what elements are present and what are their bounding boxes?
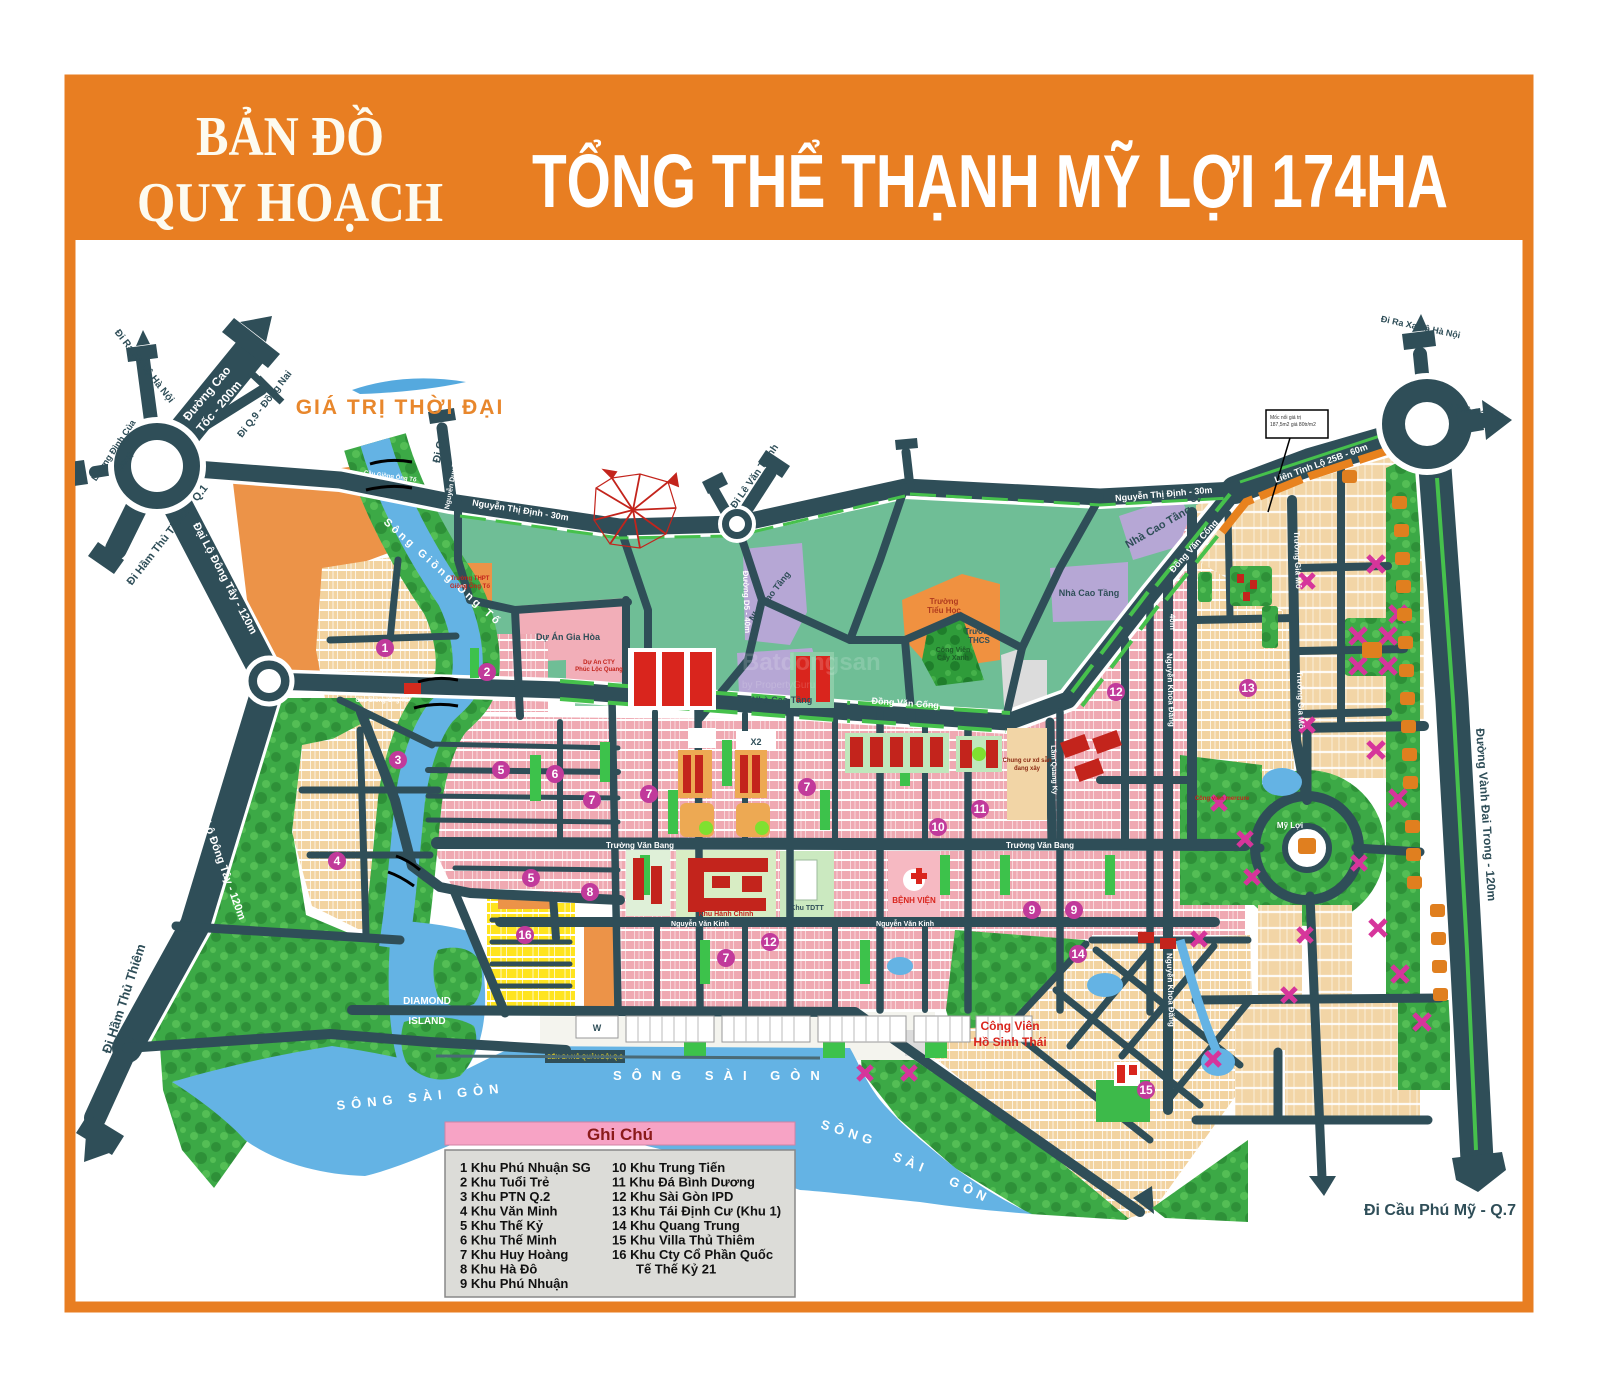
svg-text:Chung cư xd sẵn: Chung cư xd sẵn [1002, 757, 1051, 764]
svg-text:Trường: Trường [965, 627, 994, 636]
svg-text:2: 2 [484, 665, 491, 679]
svg-text:SÔNG SÀI GÒN: SÔNG SÀI GÒN [613, 1068, 830, 1083]
svg-text:Dự An CTY: Dự An CTY [583, 660, 615, 666]
svg-text:Khu TDTT: Khu TDTT [790, 905, 824, 912]
svg-text:GIÁ TRỊ THỜI ĐẠI: GIÁ TRỊ THỜI ĐẠI [296, 395, 505, 419]
svg-text:3: 3 [395, 753, 402, 767]
svg-text:4: 4 [334, 854, 341, 868]
svg-text:Công Viên: Công Viên [980, 1019, 1039, 1033]
svg-text:Batdongsan: Batdongsan [742, 649, 881, 676]
svg-text:12 Khu Sài Gòn IPD: 12 Khu Sài Gòn IPD [612, 1189, 733, 1204]
svg-text:W: W [593, 1023, 602, 1033]
svg-text:đang xây: đang xây [1014, 766, 1041, 772]
svg-text:7 Khu Huy Hoàng: 7 Khu Huy Hoàng [460, 1247, 568, 1262]
svg-text:ISLAND: ISLAND [408, 1016, 445, 1027]
svg-text:Trường THPT: Trường THPT [451, 576, 490, 582]
svg-text:16 Khu Cty Cổ Phần Quốc: 16 Khu Cty Cổ Phần Quốc [612, 1247, 773, 1262]
svg-text:9: 9 [1029, 903, 1036, 917]
svg-text:Hồ Sinh Thái: Hồ Sinh Thái [973, 1035, 1046, 1049]
svg-text:14 Khu Quang Trung: 14 Khu Quang Trung [612, 1218, 740, 1233]
svg-text:9 Khu Phú Nhuận: 9 Khu Phú Nhuận [460, 1276, 568, 1291]
svg-text:6: 6 [552, 767, 559, 781]
svg-text:1 Khu Phú Nhuận SG: 1 Khu Phú Nhuận SG [460, 1160, 591, 1175]
svg-text:Công viên mercure: Công viên mercure [1195, 796, 1250, 802]
svg-text:Khu Hành Chính: Khu Hành Chính [699, 911, 754, 918]
svg-text:12: 12 [1109, 685, 1123, 699]
svg-text:Cầu Giồng Ông Tố: Cầu Giồng Ông Tố [356, 696, 409, 704]
svg-text:15: 15 [1139, 1083, 1153, 1097]
svg-text:Đi Cầu Phú Mỹ - Q.7: Đi Cầu Phú Mỹ - Q.7 [1364, 1202, 1516, 1219]
svg-text:Tế Thế Kỷ 21: Tế Thế Kỷ 21 [636, 1262, 716, 1277]
svg-text:14: 14 [1071, 947, 1085, 961]
svg-text:Giồng Ông Tố: Giồng Ông Tố [450, 582, 490, 590]
svg-text:13: 13 [1241, 681, 1255, 695]
svg-text:Dự Án Gia Hòa: Dự Án Gia Hòa [536, 632, 601, 642]
svg-text:40m: 40m [1168, 614, 1178, 630]
svg-text:5: 5 [498, 763, 505, 777]
svg-text:10 Khu Trung Tiến: 10 Khu Trung Tiến [612, 1160, 725, 1175]
svg-text:Tiểu Học: Tiểu Học [927, 606, 961, 615]
svg-text:4 Khu Văn Minh: 4 Khu Văn Minh [460, 1204, 558, 1219]
svg-text:Nhà Cao Tầng: Nhà Cao Tầng [1059, 588, 1120, 598]
svg-text:Trường Văn Bang: Trường Văn Bang [1006, 841, 1074, 850]
svg-text:11: 11 [974, 802, 987, 816]
svg-text:9: 9 [1071, 903, 1078, 917]
svg-text:2 Khu Tuổi Trẻ: 2 Khu Tuổi Trẻ [460, 1175, 549, 1190]
svg-text:Trường: Trường [930, 597, 959, 606]
svg-text:Mỹ Lợi: Mỹ Lợi [1277, 821, 1303, 830]
svg-text:187,5m2 giá 80tr/m2: 187,5m2 giá 80tr/m2 [1270, 422, 1316, 428]
svg-text:13 Khu Tái Định Cư (Khu 1): 13 Khu Tái Định Cư (Khu 1) [612, 1204, 781, 1219]
svg-text:16: 16 [518, 928, 532, 942]
svg-text:6 Khu Thế Minh: 6 Khu Thế Minh [460, 1233, 557, 1248]
svg-text:8: 8 [587, 885, 594, 899]
svg-text:BỆNH VIỆN: BỆNH VIỆN [892, 896, 936, 905]
svg-text:BẢN ĐỒ: BẢN ĐỒ [196, 104, 384, 168]
svg-text:7: 7 [723, 951, 730, 965]
svg-text:Ghi Chú: Ghi Chú [587, 1125, 653, 1144]
svg-text:Mốc nối giá trị: Mốc nối giá trị [1270, 415, 1301, 421]
svg-text:Nguyễn Văn Kỉnh: Nguyễn Văn Kỉnh [671, 919, 729, 928]
svg-text:8 Khu Hà Đô: 8 Khu Hà Đô [460, 1262, 537, 1277]
svg-text:10: 10 [931, 820, 945, 834]
svg-text:7: 7 [804, 780, 811, 794]
svg-text:5: 5 [528, 871, 535, 885]
svg-text:11 Khu Đá Bình Dương: 11 Khu Đá Bình Dương [612, 1175, 755, 1190]
svg-text:Công Viên: Công Viên [936, 647, 970, 654]
svg-text:X2: X2 [750, 737, 761, 747]
svg-text:5 Khu Thế Kỷ: 5 Khu Thế Kỷ [460, 1218, 544, 1233]
svg-text:Trường Văn Bang: Trường Văn Bang [606, 841, 674, 850]
svg-text:Nhà Cao Tầng: Nhà Cao Tầng [752, 695, 813, 705]
svg-text:CV: CV [1190, 495, 1202, 504]
svg-text:TỔNG THỂ THẠNH MỸ LỢI 174HA: TỔNG THỂ THẠNH MỸ LỢI 174HA [532, 139, 1448, 223]
svg-text:THCS: THCS [968, 636, 990, 645]
svg-text:QUY HOẠCH: QUY HOẠCH [137, 172, 443, 234]
svg-text:3 Khu PTN Q.2: 3 Khu PTN Q.2 [460, 1189, 550, 1204]
svg-text:DIAMOND: DIAMOND [403, 996, 451, 1007]
svg-text:15 Khu Villa Thủ Thiêm: 15 Khu Villa Thủ Thiêm [612, 1233, 755, 1248]
svg-text:Cây Xanh: Cây Xanh [937, 655, 969, 662]
svg-text:12: 12 [763, 935, 777, 949]
svg-text:by PropertyGuru: by PropertyGuru [742, 680, 815, 691]
svg-text:7: 7 [589, 793, 596, 807]
svg-text:Nguyễn Văn Kỉnh: Nguyễn Văn Kỉnh [876, 919, 934, 928]
svg-text:Phúc Lộc Quang: Phúc Lộc Quang [575, 667, 623, 673]
svg-text:1: 1 [382, 641, 389, 655]
svg-text:7: 7 [646, 787, 653, 801]
